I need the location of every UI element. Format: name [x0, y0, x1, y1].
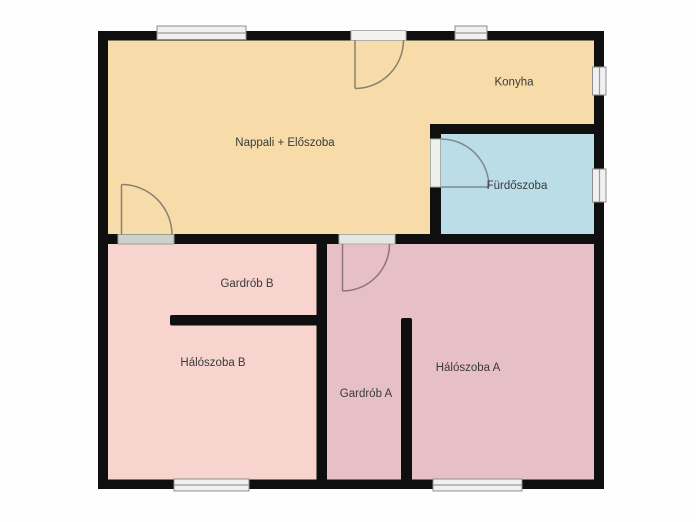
svg-text:Hálószoba B: Hálószoba B — [180, 357, 246, 369]
svg-text:Konyha: Konyha — [494, 77, 534, 89]
svg-text:Fürdőszoba: Fürdőszoba — [487, 180, 548, 192]
svg-text:Gardrób A: Gardrób A — [340, 388, 393, 400]
svg-text:Nappali + Előszoba: Nappali + Előszoba — [235, 137, 335, 149]
svg-text:Hálószoba A: Hálószoba A — [436, 362, 501, 374]
svg-text:Gardrób B: Gardrób B — [220, 278, 273, 290]
